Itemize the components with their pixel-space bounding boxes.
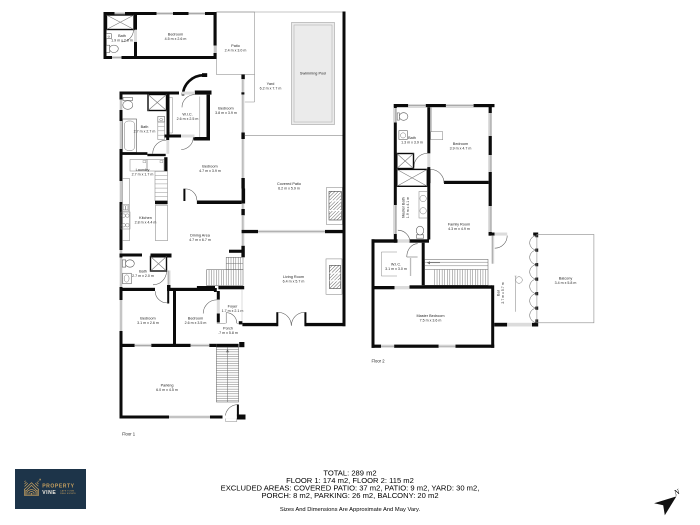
svg-text:Bar: Bar — [497, 289, 501, 296]
svg-text:Porch: Porch — [223, 327, 233, 331]
svg-text:Patio: Patio — [231, 44, 240, 48]
svg-text:4.7 m x 6.7 m: 4.7 m x 6.7 m — [189, 238, 211, 242]
svg-text:4.3 m x 4.9 m: 4.3 m x 4.9 m — [448, 227, 470, 231]
svg-text:Floor 1: Floor 1 — [122, 432, 136, 437]
svg-text:Bedroom: Bedroom — [168, 32, 183, 36]
svg-text:6.2 m x 5.9 m: 6.2 m x 5.9 m — [278, 186, 300, 190]
svg-text:Bedroom: Bedroom — [188, 317, 203, 321]
svg-text:6.2 m x 7.7 m: 6.2 m x 7.7 m — [260, 87, 282, 91]
svg-text:2.6 m x 3.5 m: 2.6 m x 3.5 m — [185, 321, 207, 325]
svg-text:3.9 m x 4.7 m: 3.9 m x 4.7 m — [450, 147, 472, 151]
svg-text:Floor 2: Floor 2 — [372, 358, 386, 363]
svg-text:W.I.C.: W.I.C. — [391, 263, 401, 267]
svg-text:Bedroom: Bedroom — [218, 107, 233, 111]
svg-text:2.7 m x 2.0 m: 2.7 m x 2.0 m — [132, 274, 154, 278]
svg-text:1.3 m x 3.9 m: 1.3 m x 3.9 m — [401, 141, 423, 145]
svg-text:VINE: VINE — [42, 490, 56, 496]
svg-text:Bath: Bath — [408, 136, 416, 140]
svg-text:2.7 m x 5.7 m: 2.7 m x 5.7 m — [501, 282, 505, 303]
svg-text:CAPE TOWN: CAPE TOWN — [60, 489, 75, 492]
svg-text:7.5 m x 3.6 m: 7.5 m x 3.6 m — [420, 318, 442, 322]
svg-text:2.6 m x 2.5 m: 2.6 m x 2.5 m — [177, 117, 199, 121]
svg-text:1.9 m x 4.1 m: 1.9 m x 4.1 m — [406, 197, 410, 218]
svg-text:4.5 m x 2.6 m: 4.5 m x 2.6 m — [165, 37, 187, 41]
svg-text:Sizes And Dimensions Are Appro: Sizes And Dimensions Are Approximate And… — [280, 507, 421, 513]
svg-text:3.8 m x 3.9 m: 3.8 m x 3.9 m — [215, 111, 237, 115]
svg-text:3.1 m x 2.6 m: 3.1 m x 2.6 m — [137, 321, 159, 325]
svg-text:Dining Area: Dining Area — [190, 234, 211, 238]
svg-text:2.7 m x 2.7 m: 2.7 m x 2.7 m — [134, 130, 156, 134]
svg-text:Bedroom: Bedroom — [453, 142, 468, 146]
svg-text:3.4 m x 5.8 m: 3.4 m x 5.8 m — [555, 281, 577, 285]
svg-text:Bath: Bath — [118, 34, 126, 38]
svg-text:Family Room: Family Room — [448, 222, 470, 226]
svg-text:Covered Patio: Covered Patio — [277, 182, 301, 186]
svg-text:2.4 m x 3.0 m: 2.4 m x 3.0 m — [225, 48, 247, 52]
svg-text:Parking: Parking — [161, 383, 174, 387]
svg-text:1.9 m x 2.6 m: 1.9 m x 2.6 m — [111, 38, 133, 42]
svg-text:1.7 m x 2.1 m: 1.7 m x 2.1 m — [222, 309, 244, 313]
svg-text:PROPERTY: PROPERTY — [42, 483, 74, 489]
svg-text:Foyer: Foyer — [228, 305, 238, 309]
svg-text:2.7 m x 1.7 m: 2.7 m x 1.7 m — [132, 173, 154, 177]
svg-text:6.0 m x 4.5 m: 6.0 m x 4.5 m — [156, 388, 178, 392]
svg-text:Swimming Pool: Swimming Pool — [300, 72, 326, 76]
svg-text:Master Bath: Master Bath — [402, 197, 406, 217]
svg-text:Balcony: Balcony — [559, 277, 573, 281]
svg-text:Master Bedroom: Master Bedroom — [416, 314, 444, 318]
svg-text:Bedroom: Bedroom — [202, 165, 217, 169]
svg-text:REAL ESTATE: REAL ESTATE — [60, 492, 76, 495]
svg-text:Living Room: Living Room — [283, 275, 304, 279]
svg-text:Bath: Bath — [141, 125, 149, 129]
svg-text:Kitchen: Kitchen — [139, 216, 152, 220]
svg-text:3.1 m x 3.0 m: 3.1 m x 3.0 m — [385, 267, 407, 271]
svg-text:W.I.C.: W.I.C. — [182, 113, 192, 117]
svg-text:Bath: Bath — [139, 270, 147, 274]
svg-text:Bedroom: Bedroom — [140, 316, 155, 320]
svg-text:2.8 m x 4.4 m: 2.8 m x 4.4 m — [135, 221, 157, 225]
svg-text:Yard: Yard — [267, 82, 275, 86]
svg-text:4.7 m x 3.9 m: 4.7 m x 3.9 m — [199, 169, 221, 173]
svg-text:.7 m x 5.8 m: .7 m x 5.8 m — [218, 331, 238, 335]
svg-text:6.4 m x 5.7 m: 6.4 m x 5.7 m — [283, 279, 305, 283]
svg-text:Laundry: Laundry — [136, 168, 150, 172]
svg-text:PORCH: 8 m2, PARKING: 26 m2, B: PORCH: 8 m2, PARKING: 26 m2, BALCONY: 20… — [261, 491, 438, 500]
